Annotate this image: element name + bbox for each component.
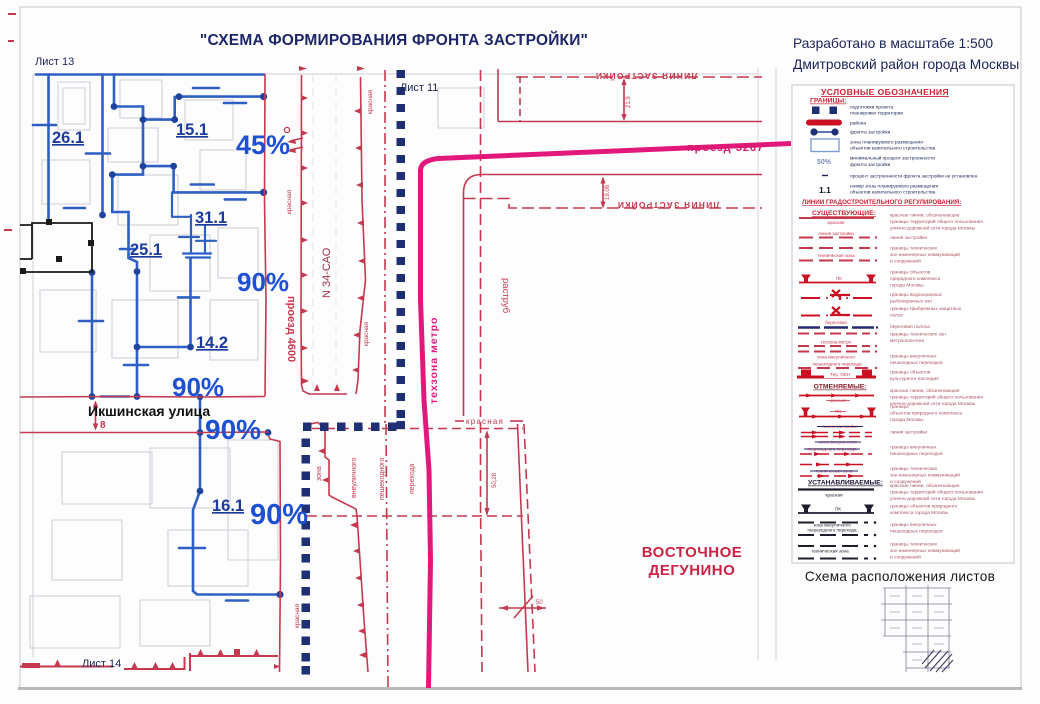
svg-text:красные линии, обозначающие: красные линии, обозначающие [890, 388, 960, 394]
svg-text:зон инженерных коммуникаций: зон инженерных коммуникаций [890, 547, 960, 554]
svg-text:процент застроенности фронта з: процент застроенности фронта застройки н… [850, 173, 978, 180]
svg-text:зон инженерных коммуникаций: зон инженерных коммуникаций [890, 472, 960, 479]
svg-text:номер зоны планируемого размещ: номер зоны планируемого размещения [850, 185, 938, 190]
svg-text:ПК: ПК [836, 276, 842, 281]
svg-text:техническая зона: техническая зона [817, 253, 855, 258]
svg-text:и сооружений: и сооружений [890, 554, 921, 561]
svg-text:береговая полоса: береговая полоса [890, 324, 930, 330]
svg-text:ВОСТОЧНОЕ: ВОСТОЧНОЕ [642, 544, 743, 561]
svg-text:ПК: ПК [835, 507, 841, 512]
svg-text:Схема расположения листов: Схема расположения листов [805, 569, 995, 584]
svg-text:Тер. ОКН: Тер. ОКН [830, 372, 850, 377]
svg-text:90%: 90% [237, 267, 289, 297]
svg-text:красная: красная [466, 417, 504, 426]
svg-text:техзона метро: техзона метро [428, 317, 440, 404]
svg-text:Лист 14: Лист 14 [82, 658, 121, 670]
svg-text:ЛИНИЯ ЗАСТРОЙКИ: ЛИНИЯ ЗАСТРОЙКИ [595, 71, 698, 82]
svg-text:метрополитена: метрополитена [890, 339, 924, 344]
svg-text:зон инженерных коммуникаций: зон инженерных коммуникаций [890, 251, 960, 258]
svg-text:внеуличного: внеуличного [351, 457, 358, 498]
svg-text:зоны планируемого размещения: зоны планируемого размещения [850, 141, 923, 146]
svg-text:улично-дорожной сети города Мо: улично-дорожной сети города Москвы [890, 225, 976, 232]
svg-text:границы технических зон: границы технических зон [890, 333, 946, 338]
svg-text:90%: 90% [172, 372, 224, 402]
svg-text:50,28: 50,28 [492, 472, 498, 488]
svg-text:красные линии, обозначающие: красные линии, обозначающие [890, 213, 960, 219]
svg-text:50%: 50% [817, 159, 832, 166]
svg-text:14.2: 14.2 [196, 334, 228, 352]
svg-text:подготовки проекта: подготовки проекта [850, 106, 894, 111]
svg-text:перехода: перехода [409, 463, 416, 494]
svg-text:проезд 5267: проезд 5267 [687, 142, 764, 154]
svg-text:границы территорий общего поль: границы территорий общего пользования [890, 394, 983, 401]
svg-text:Лист 11: Лист 11 [400, 82, 438, 94]
svg-text:линия застройки: линия застройки [818, 230, 854, 236]
svg-text:техзона метро: техзона метро [821, 340, 852, 345]
svg-text:26.1: 26.1 [52, 129, 84, 147]
svg-text:УСЛОВНЫЕ ОБОЗНАЧЕНИЯ: УСЛОВНЫЕ ОБОЗНАЧЕНИЯ [821, 87, 949, 97]
svg-text:ДЕГУНИНО: ДЕГУНИНО [649, 562, 736, 579]
svg-text:природного комплекса: природного комплекса [890, 277, 941, 282]
svg-text:полос: полос [890, 314, 904, 319]
svg-text:красная: красная [826, 493, 844, 498]
svg-text:пешеходных переходов: пешеходных переходов [890, 452, 943, 457]
svg-text:границы прибрежных защитных: границы прибрежных защитных [890, 306, 962, 312]
svg-text:границы внеуличных: границы внеуличных [890, 523, 937, 528]
svg-text:красная: красная [294, 603, 301, 628]
svg-text:ЛИНИЯ ЗАСТРОЙКИ: ЛИНИЯ ЗАСТРОЙКИ [617, 200, 720, 211]
svg-text:рыбоохранных зон: рыбоохранных зон [890, 299, 932, 305]
svg-text:фронта застройки: фронта застройки [850, 161, 891, 168]
svg-text:пешеходного: пешеходного [379, 458, 386, 500]
svg-text:ОТМЕНЯЕМЫЕ:: ОТМЕНЯЕМЫЕ: [813, 384, 866, 391]
svg-text:фронта застройки: фронта застройки [850, 129, 891, 136]
svg-text:Икшинская улица: Икшинская улица [88, 403, 210, 419]
svg-text:25.1: 25.1 [130, 241, 162, 259]
svg-text:границы: границы [890, 405, 909, 410]
svg-text:береговая: береговая [825, 320, 847, 325]
svg-text:границы технических: границы технических [890, 247, 938, 252]
svg-text:техническая зона: техническая зона [811, 549, 849, 554]
svg-text:50: 50 [536, 600, 543, 606]
svg-text:УСТАНАВЛИВАЕМЫЕ:: УСТАНАВЛИВАЕМЫЕ: [808, 480, 883, 487]
svg-text:раструб: раструб [500, 278, 511, 314]
svg-text:красные линии, обозначающие: красные линии, обозначающие [890, 483, 960, 489]
svg-text:"СХЕМА ФОРМИРОВАНИЯ ФРОНТА ЗАС: "СХЕМА ФОРМИРОВАНИЯ ФРОНТА ЗАСТРОЙКИ" [200, 31, 588, 49]
svg-text:СУЩЕСТВУЮЩИЕ:: СУЩЕСТВУЮЩИЕ: [812, 210, 876, 217]
svg-text:комплекса города Москвы: комплекса города Москвы [890, 510, 949, 516]
svg-text:и сооружений: и сооружений [890, 258, 921, 265]
svg-text:города Москвы: города Москвы [890, 417, 924, 423]
svg-text:Разработано в масштабе 1:500: Разработано в масштабе 1:500 [793, 36, 993, 51]
svg-text:зона: зона [316, 466, 323, 481]
svg-text:красная: красная [367, 89, 374, 114]
svg-text:красная: красная [828, 220, 846, 225]
svg-text:границы технических: границы технических [890, 543, 938, 548]
svg-text:31.1: 31.1 [195, 209, 227, 227]
svg-text:объектов природного комплекса: объектов природного комплекса [890, 411, 962, 417]
svg-text:границы объектов: границы объектов [890, 370, 931, 376]
svg-text:пешеходного перехода: пешеходного перехода [807, 528, 856, 533]
svg-text:границы внеуличных: границы внеуличных [890, 355, 937, 360]
svg-text:Лист 13: Лист 13 [35, 56, 74, 68]
svg-text:90%: 90% [250, 499, 308, 531]
svg-text:16.1: 16.1 [212, 497, 244, 515]
svg-text:границы водоохранных: границы водоохранных [890, 293, 943, 298]
svg-text:красная: красная [286, 189, 293, 214]
svg-text:линия застройки: линия застройки [822, 423, 858, 429]
svg-text:границы территорий общего поль: границы территорий общего пользования [890, 218, 983, 225]
svg-text:19.08: 19.08 [605, 184, 611, 200]
svg-text:пешеходных переходов: пешеходных переходов [890, 530, 943, 535]
svg-text:пешеходного перехода: пешеходного перехода [812, 362, 861, 367]
svg-text:района: района [850, 120, 866, 127]
svg-text:зона внеуличного: зона внеуличного [817, 355, 855, 360]
svg-text:90%: 90% [205, 414, 261, 445]
svg-text:минимальный процент застроенно: минимальный процент застроенности [850, 155, 935, 162]
svg-text:проезд 4600: проезд 4600 [285, 296, 297, 362]
svg-text:красная: красная [363, 321, 370, 346]
svg-text:N 34-САО: N 34-САО [321, 247, 333, 298]
svg-text:границы внеуличных: границы внеуличных [890, 446, 937, 451]
svg-text:21.9: 21.9 [626, 96, 632, 108]
svg-text:объектов капитального строител: объектов капитального строительства [850, 190, 936, 196]
svg-text:границы территорий общего поль: границы территорий общего пользования [890, 489, 983, 496]
svg-text:пешеходных переходов: пешеходных переходов [890, 361, 943, 366]
svg-text:линия застройки: линия застройки [890, 234, 927, 241]
svg-text:границы технических: границы технических [890, 467, 938, 472]
svg-text:15.1: 15.1 [176, 121, 208, 139]
svg-text:улично-дорожной сети города Мо: улично-дорожной сети города Москвы [890, 495, 976, 502]
svg-text:города Москвы: города Москвы [890, 283, 924, 289]
svg-text:8: 8 [100, 420, 106, 431]
svg-text:ЛИНИИ ГРАДОСТРОИТЕЛЬНОГО РЕГУЛ: ЛИНИИ ГРАДОСТРОИТЕЛЬНОГО РЕГУЛИРОВАНИЯ: [802, 199, 961, 206]
svg-text:1.1: 1.1 [819, 185, 831, 195]
svg-text:объектов капитального строител: объектов капитального строительства [850, 146, 936, 152]
svg-text:границы объектов: границы объектов [890, 270, 931, 276]
svg-text:планировки территории: планировки территории [850, 112, 903, 117]
svg-text:Дмитровский район города Москв: Дмитровский район города Москвы [793, 57, 1019, 72]
svg-text:ГРАНИЦЫ:: ГРАНИЦЫ: [810, 98, 846, 105]
svg-text:культурного наследия: культурного наследия [890, 377, 939, 382]
svg-text:границы объектов природного: границы объектов природного [890, 504, 958, 510]
svg-text:линия застройки: линия застройки [890, 429, 927, 436]
svg-text:45%: 45% [236, 130, 290, 160]
